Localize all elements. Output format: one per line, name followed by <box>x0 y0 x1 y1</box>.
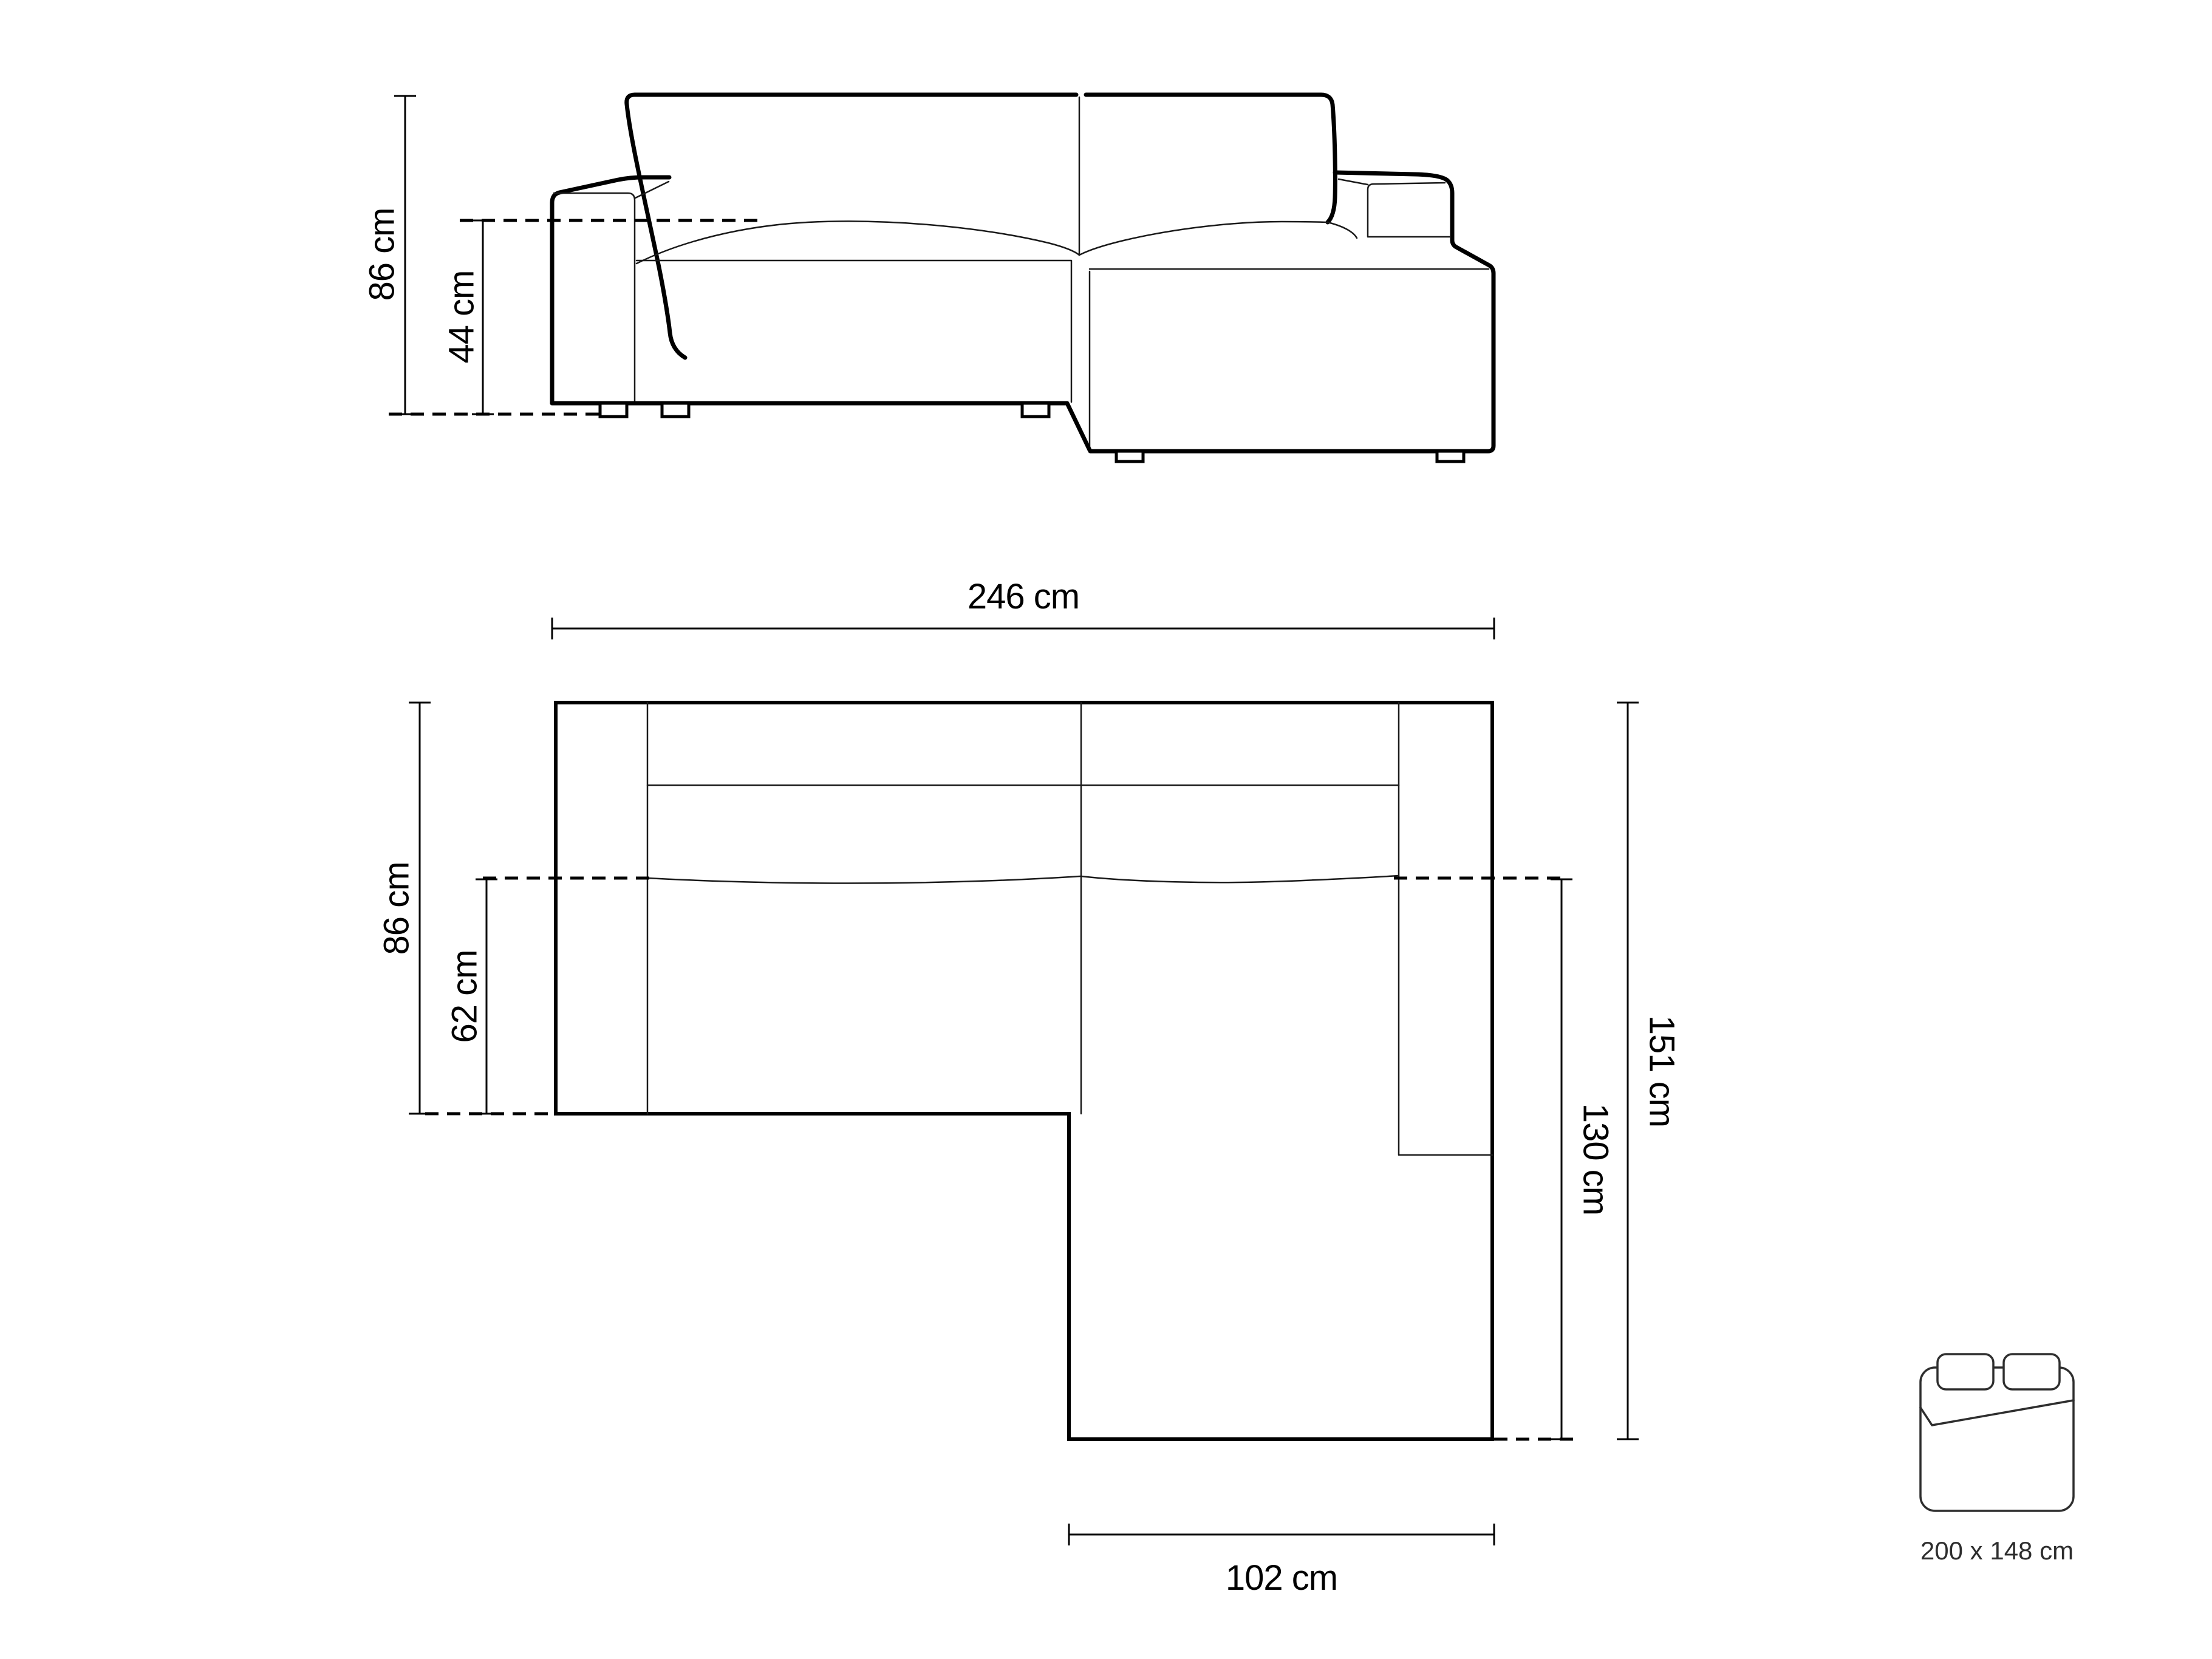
plan-seat-depth-dimension: 62 cm <box>445 879 498 1114</box>
dimension-line <box>1551 879 1572 1439</box>
plan-outline <box>556 703 1492 1439</box>
plan-depth-label: 86 cm <box>377 862 417 955</box>
plan-depth-dimension: 86 cm <box>377 703 431 1114</box>
plan-view: 246 cm 86 cm 62 cm 151 cm 130 cm <box>377 577 1682 1598</box>
left-backrest-cushion-outline <box>627 95 1076 358</box>
front-seat-height-dimension: 44 cm <box>442 220 494 414</box>
bed-pillow <box>2004 1354 2060 1389</box>
front-height-dimension: 86 cm <box>363 96 417 414</box>
left-seat-cushion-top <box>637 221 1079 264</box>
left-armrest-outer-edge <box>552 177 669 403</box>
dimension-line <box>1069 1524 1494 1545</box>
bed-duvet-fold-line <box>1920 1400 2074 1425</box>
sofa-leg <box>662 403 689 417</box>
sofa-leg <box>600 403 627 417</box>
left-armrest-front-face <box>554 193 635 402</box>
plan-total-depth-dimension: 151 cm <box>1617 703 1682 1439</box>
chaise-leg <box>1116 451 1143 462</box>
plan-width-dimension: 246 cm <box>552 577 1494 639</box>
diagram-page: 86 cm 44 cm <box>0 0 2212 1659</box>
double-bed-icon <box>1920 1354 2074 1511</box>
plan-view-sofa-drawing <box>556 703 1492 1439</box>
sleeping-area-size-label: 200 x 148 cm <box>1920 1536 2074 1565</box>
right-armrest-inner-top-edge <box>1339 179 1368 185</box>
plan-width-label: 246 cm <box>968 577 1079 616</box>
front-seat-height-label: 44 cm <box>442 271 482 364</box>
right-seat-cushion-top <box>1079 222 1357 255</box>
plan-chaise-width-label: 102 cm <box>1226 1558 1337 1598</box>
plan-seat-front-edge <box>647 876 1399 884</box>
plan-total-depth-label: 151 cm <box>1642 1015 1682 1127</box>
front-view-sofa-drawing <box>552 95 1493 462</box>
plan-chaise-depth-dimension: 130 cm <box>1551 879 1616 1439</box>
front-height-label: 86 cm <box>363 208 402 301</box>
front-view: 86 cm 44 cm <box>363 95 1494 462</box>
plan-chaise-width-dimension: 102 cm <box>1069 1524 1494 1598</box>
right-armrest-and-chaise-outer-edge <box>1090 172 1493 451</box>
sofa-leg <box>1022 403 1049 417</box>
plan-right-armrest-line <box>1399 703 1492 1155</box>
chaise-leg <box>1437 451 1464 462</box>
right-armrest-inner-face <box>1368 183 1450 237</box>
dimension-line <box>1617 703 1639 1439</box>
plan-seat-depth-label: 62 cm <box>445 950 485 1043</box>
right-backrest-cushion-outline <box>1086 95 1335 222</box>
plan-chaise-depth-label: 130 cm <box>1576 1103 1616 1215</box>
sleeping-area: 200 x 148 cm <box>1920 1354 2074 1565</box>
bed-pillow <box>1937 1354 1993 1389</box>
base-bottom-edge <box>552 403 1090 450</box>
sofa-dimensions-diagram: 86 cm 44 cm <box>0 0 2212 1659</box>
dimension-line <box>552 618 1494 639</box>
